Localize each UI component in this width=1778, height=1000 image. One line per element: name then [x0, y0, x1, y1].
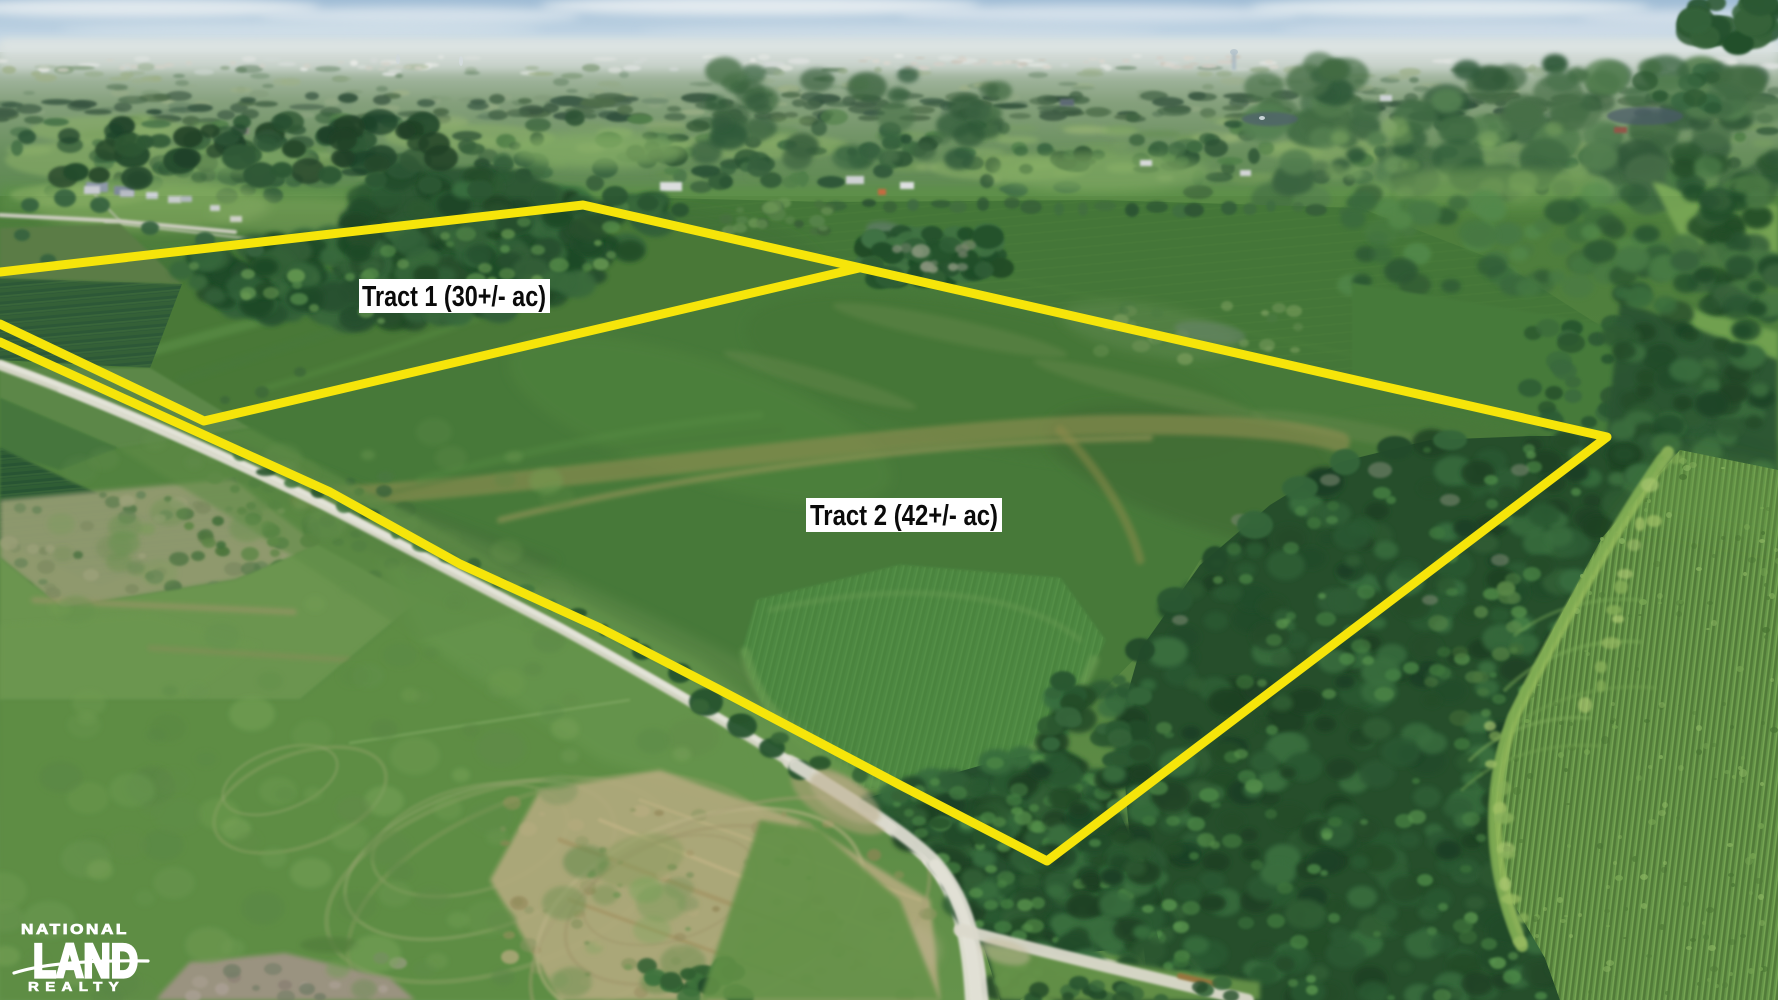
svg-text:REALTY: REALTY	[28, 980, 125, 994]
svg-text:Tract 1 (30+/- ac): Tract 1 (30+/- ac)	[362, 281, 546, 313]
svg-text:Tract 2 (42+/- ac): Tract 2 (42+/- ac)	[810, 500, 998, 532]
